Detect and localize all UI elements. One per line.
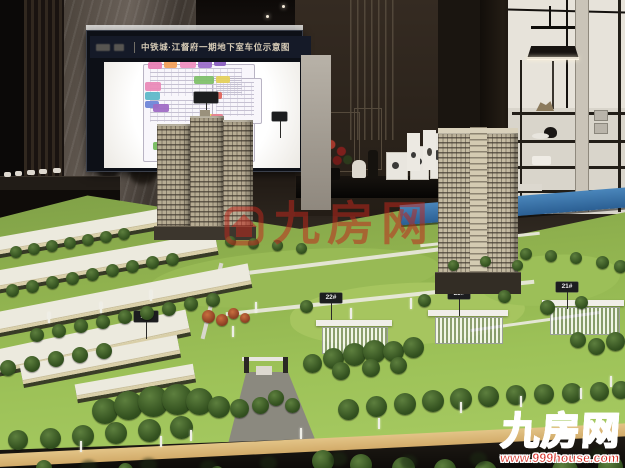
tree [6,284,19,297]
tree [338,399,359,420]
tree [162,302,176,316]
street-lamp [610,376,612,387]
tree [540,300,555,315]
tree [8,430,28,450]
tree [512,260,523,271]
tree [118,228,130,240]
tree [390,357,407,374]
tree [48,351,64,367]
tree [534,384,554,404]
tree [590,382,609,401]
street-lamp [350,308,352,319]
tree [64,237,76,249]
tree [105,422,127,444]
corner-watermark-url: www.999house.com [499,451,620,465]
tree [10,246,22,258]
street-lamp [150,290,152,301]
reflection-blob [330,452,347,466]
street-lamp [232,326,234,337]
tree [86,268,99,281]
tree [28,243,40,255]
tree [478,386,499,407]
red-tree [240,313,250,323]
reflection-blob [470,452,487,466]
tree [506,385,526,405]
tree [208,396,230,418]
red-tree [216,314,228,326]
tree [448,260,459,271]
street-lamp [190,430,192,441]
tree [588,338,605,355]
tree [26,280,39,293]
tree [74,319,88,333]
tree [126,260,139,273]
tree [0,360,16,376]
tree [138,419,161,442]
corner-watermark-brand: 九房网 [500,413,623,451]
tree [480,256,491,267]
street-lamp [160,436,162,447]
tree [230,399,249,418]
tree [52,324,66,338]
tree [394,393,416,415]
tree [268,390,284,406]
tree [96,315,110,329]
tree [100,231,112,243]
tree [146,256,159,269]
tree [520,248,532,260]
tree [418,294,431,307]
tree [140,306,154,320]
tree [46,276,59,289]
tree [545,250,557,262]
street-lamp [255,302,257,313]
corner-watermark: 九房网 www.999house.com [499,413,623,465]
red-tree [202,310,215,323]
tree [96,343,112,359]
center-watermark-text: 九房网 [273,200,435,247]
reflection-blob [200,460,217,468]
tree [498,290,511,303]
tree [166,253,179,266]
tree [252,397,269,414]
tree [562,383,582,403]
tree [366,396,387,417]
tree [36,460,52,468]
street-lamp [378,418,380,429]
tree [30,328,44,342]
tree [606,332,625,351]
tree [303,354,322,373]
tree [350,454,372,468]
street-lamp [520,396,522,407]
street-lamp [80,441,82,452]
street-lamp [410,298,412,309]
tree [206,293,220,307]
center-watermark: 九房网 [224,200,435,247]
tree [332,362,350,380]
tree [118,463,133,468]
street-lamp [48,312,50,323]
reflection-blob [400,455,417,468]
tree [106,264,119,277]
street-lamp [580,388,582,399]
reflection-blob [140,458,157,468]
red-tree [228,308,239,319]
reflection-blob [260,456,277,468]
tree [285,398,300,413]
tree [575,296,588,309]
street-lamp [300,428,302,439]
reflection-blob [80,460,97,468]
tree [46,240,58,252]
tree [570,252,582,264]
tree [422,390,444,412]
tree [72,425,94,447]
tree [614,260,625,273]
tree [24,356,40,372]
tree [403,337,424,358]
street-lamp [460,402,462,413]
tree [434,459,456,468]
tree [118,310,132,324]
tree [596,256,609,269]
tree [66,272,79,285]
tree [82,234,94,246]
tree [40,428,61,449]
watermark-house-logo-icon [224,200,264,247]
tree [612,381,625,399]
tree [362,359,380,377]
tree [184,297,198,311]
tree [300,300,313,313]
tree [570,332,586,348]
street-lamp [100,302,102,313]
tree [72,347,88,363]
sales-center-model-photo: 中铁城·江督府一期地下室车位示意图 [0,0,625,468]
